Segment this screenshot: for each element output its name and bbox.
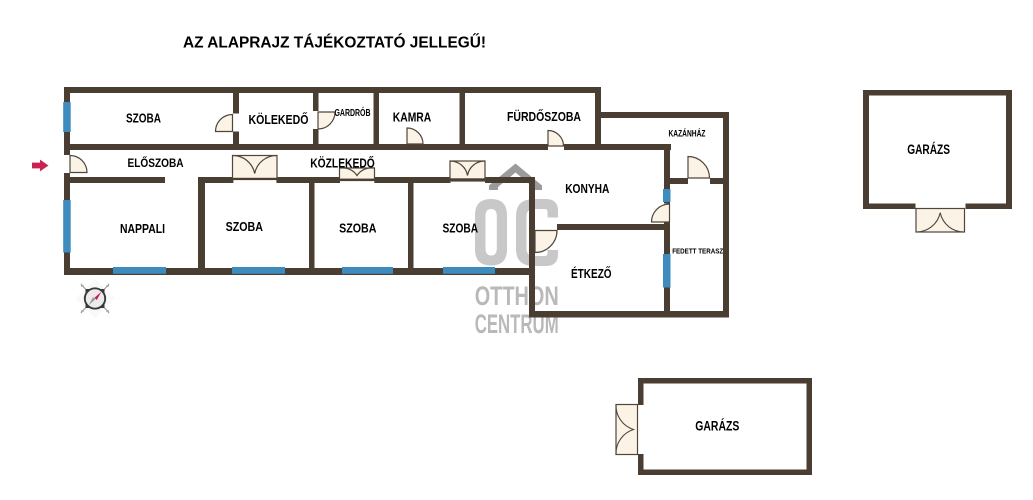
svg-text:ELŐSZOBA: ELŐSZOBA	[128, 155, 184, 170]
svg-text:OTTHON: OTTHON	[475, 281, 559, 311]
svg-text:KÖLEKEDŐ: KÖLEKEDŐ	[249, 112, 309, 127]
svg-text:GARÁZS: GARÁZS	[695, 419, 739, 434]
svg-text:KONYHA: KONYHA	[565, 181, 610, 196]
svg-text:GARDRÓB: GARDRÓB	[335, 106, 371, 119]
svg-text:SZOBA: SZOBA	[339, 221, 377, 236]
svg-text:KÖZLEKEDŐ: KÖZLEKEDŐ	[310, 156, 375, 171]
svg-text:ÉTKEZŐ: ÉTKEZŐ	[571, 266, 612, 281]
svg-text:SZOBA: SZOBA	[126, 111, 161, 126]
svg-text:KAMRA: KAMRA	[393, 110, 432, 125]
svg-text:FÜRDŐSZOBA: FÜRDŐSZOBA	[507, 109, 581, 124]
svg-text:KAZÁNHÁZ: KAZÁNHÁZ	[669, 129, 706, 139]
svg-text:FEDETT TERASZ: FEDETT TERASZ	[672, 246, 723, 255]
svg-text:SZOBA: SZOBA	[226, 219, 264, 234]
svg-text:AZ ALAPRAJZ TÁJÉKOZTATÓ JELLEG: AZ ALAPRAJZ TÁJÉKOZTATÓ JELLEGŰ!	[183, 33, 486, 52]
svg-text:GARÁZS: GARÁZS	[907, 142, 950, 157]
svg-text:SZOBA: SZOBA	[443, 221, 479, 236]
svg-text:NAPPALI: NAPPALI	[120, 221, 165, 236]
